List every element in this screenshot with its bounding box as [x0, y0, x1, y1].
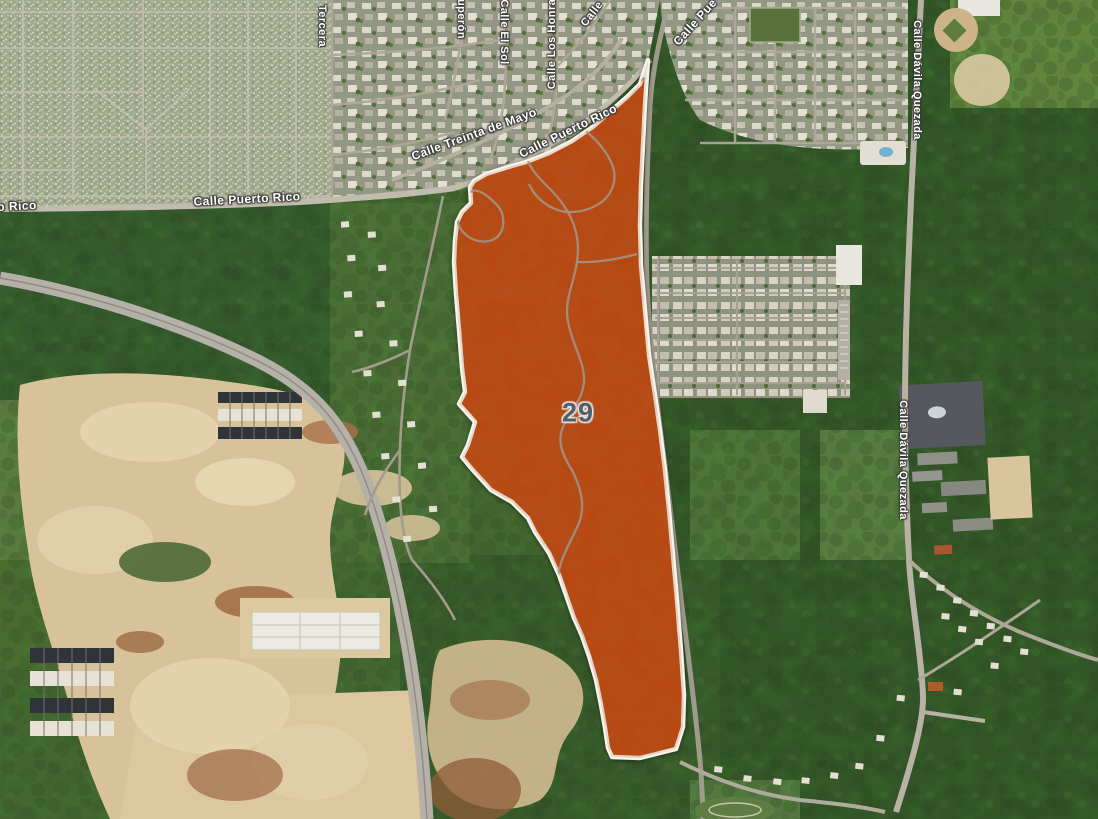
parcel-overlay: [0, 0, 1098, 819]
map-viewport[interactable]: 29 o RicoCalle Puerto RicoTercerauperónC…: [0, 0, 1098, 819]
